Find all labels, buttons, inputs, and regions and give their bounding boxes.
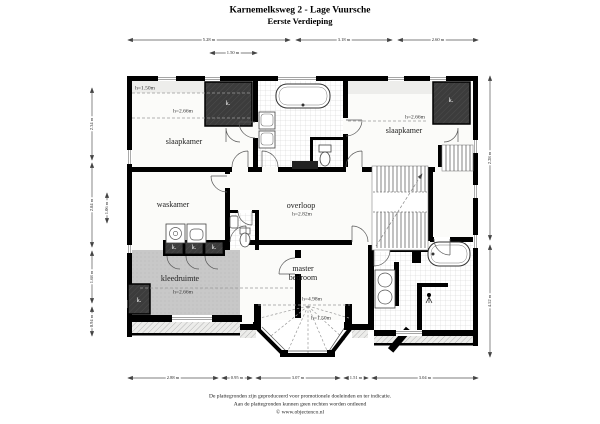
wc-sink [230,216,238,228]
wall-overloop-master [246,240,352,245]
ceiling-note-low: h=1.50m [135,86,155,92]
ceiling-note: h=2.66m [173,290,193,296]
wall-master-bottom-right [352,324,372,330]
closet-label: k. [212,245,217,251]
page-subtitle: Eerste Verdieping [268,17,333,26]
dim-label: 1.51 m [349,376,364,381]
ceiling-note: h=4.98m [302,297,322,303]
closet-label: k. [137,298,142,304]
dim-label: 0.95 m [230,376,245,381]
closet-label: k. [449,98,454,104]
room-label-kleedruimte: kleedruimte [161,275,199,283]
dim-label: 3.04 m [418,376,433,381]
double-sink-right [375,270,395,308]
dim-label: 1.06 m [105,201,110,216]
closet-label: k. [192,245,197,251]
room-label-waskamer: waskamer [157,201,189,209]
dim-label: 0.94 m [90,314,95,329]
wc-toilet [240,233,250,247]
bathtub-top [276,84,330,108]
wall-shower-v [417,283,422,330]
dim-label: 1.68 m [90,270,95,285]
dim-label: 2.60 m [431,38,446,43]
room-label-slaapkamer-right: slaapkamer [386,127,422,135]
ceiling-note: h=2.66m [405,115,425,121]
wall-master-right [368,245,374,330]
dim-label: 3.07 m [291,376,306,381]
toilet-top [319,145,331,166]
room-label-master-bedroom: master bedroom [289,264,317,282]
wall-shower-h [417,283,448,287]
footer-copyright: © www.objectenco.nl [276,410,324,416]
faucet-icon [302,104,305,107]
page-title: Karnemelksweg 2 - Lage Vuursche [230,6,371,16]
faucet-icon [432,253,435,256]
dim-label: 2.28 m [488,151,493,166]
footer-disclaimer-1: De plattegronden zijn geproduceerd voor … [209,394,391,400]
ceiling-note-low: h=1.50m [311,316,331,322]
dim-label: 4.52 m [488,294,493,309]
floorplan-page: Karnemelksweg 2 - Lage Vuursche Eerste V… [0,0,600,424]
wall-stairs-right [428,167,433,241]
wall-right [473,76,478,346]
bathtub-right [428,242,470,266]
dim-label: 2.88 m [166,376,181,381]
ceiling-note: h=2.66m [173,109,193,115]
stair-corner-flight [442,145,473,171]
ceiling-note: h=2.82m [292,212,312,218]
wall-toilet-nook-h [310,137,343,140]
closet-label: k. [172,245,177,251]
radiator [292,161,318,169]
dim-label: 5.28 m [202,38,217,43]
dim-label: 3.18 m [337,38,352,43]
dim-label: 2.84 m [90,198,95,213]
closet-label: k. [226,101,231,107]
dim-label: 2.34 m [90,117,95,132]
wall-wc-right [255,210,259,250]
footer-disclaimer-2: Aan de plattegronden kunnen geen rechten… [234,402,366,408]
dim-label: 1.50 m [226,51,241,56]
wall-bath2-bottom [374,330,478,336]
room-label-slaapkamer-left: slaapkamer [166,138,202,146]
room-label-overloop: overloop [287,202,315,210]
